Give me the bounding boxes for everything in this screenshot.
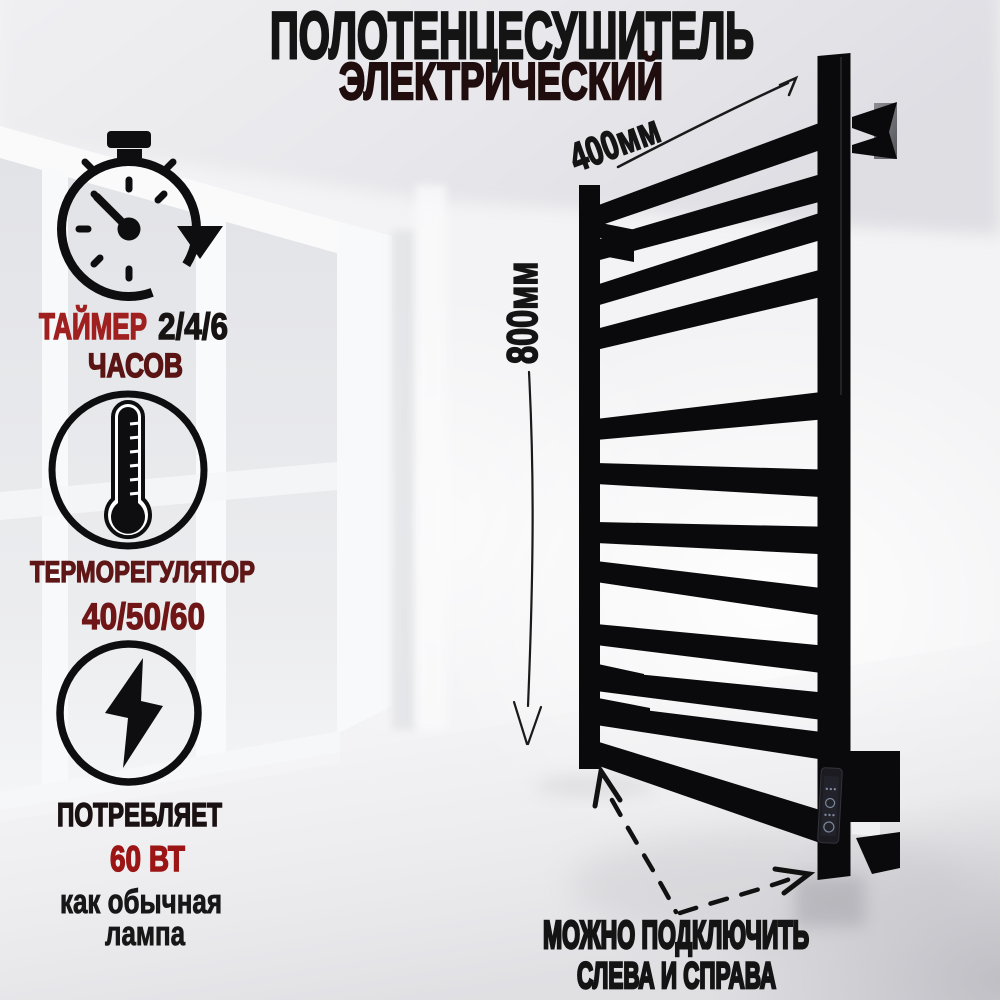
svg-text:ТАЙМЕР: ТАЙМЕР: [39, 305, 147, 347]
svg-text:ЧАСОВ: ЧАСОВ: [88, 347, 183, 385]
svg-text:ТЕРМОРЕГУЛЯТОР: ТЕРМОРЕГУЛЯТОР: [30, 556, 255, 589]
svg-text:40/50/60: 40/50/60: [82, 596, 205, 637]
svg-text:60 ВТ: 60 ВТ: [110, 838, 185, 879]
svg-text:ПОТРЕБЛЯЕТ: ПОТРЕБЛЯЕТ: [57, 796, 222, 833]
svg-text:ЭЛЕКТРИЧЕСКИЙ: ЭЛЕКТРИЧЕСКИЙ: [339, 51, 663, 111]
svg-text:800мм: 800мм: [499, 262, 547, 364]
svg-text:МОЖНО ПОДКЛЮЧИТЬ: МОЖНО ПОДКЛЮЧИТЬ: [543, 914, 809, 957]
svg-text:2/4/6: 2/4/6: [158, 306, 228, 347]
svg-text:лампа: лампа: [105, 915, 186, 953]
svg-text:СЛЕВА И СПРАВА: СЛЕВА И СПРАВА: [577, 955, 776, 996]
